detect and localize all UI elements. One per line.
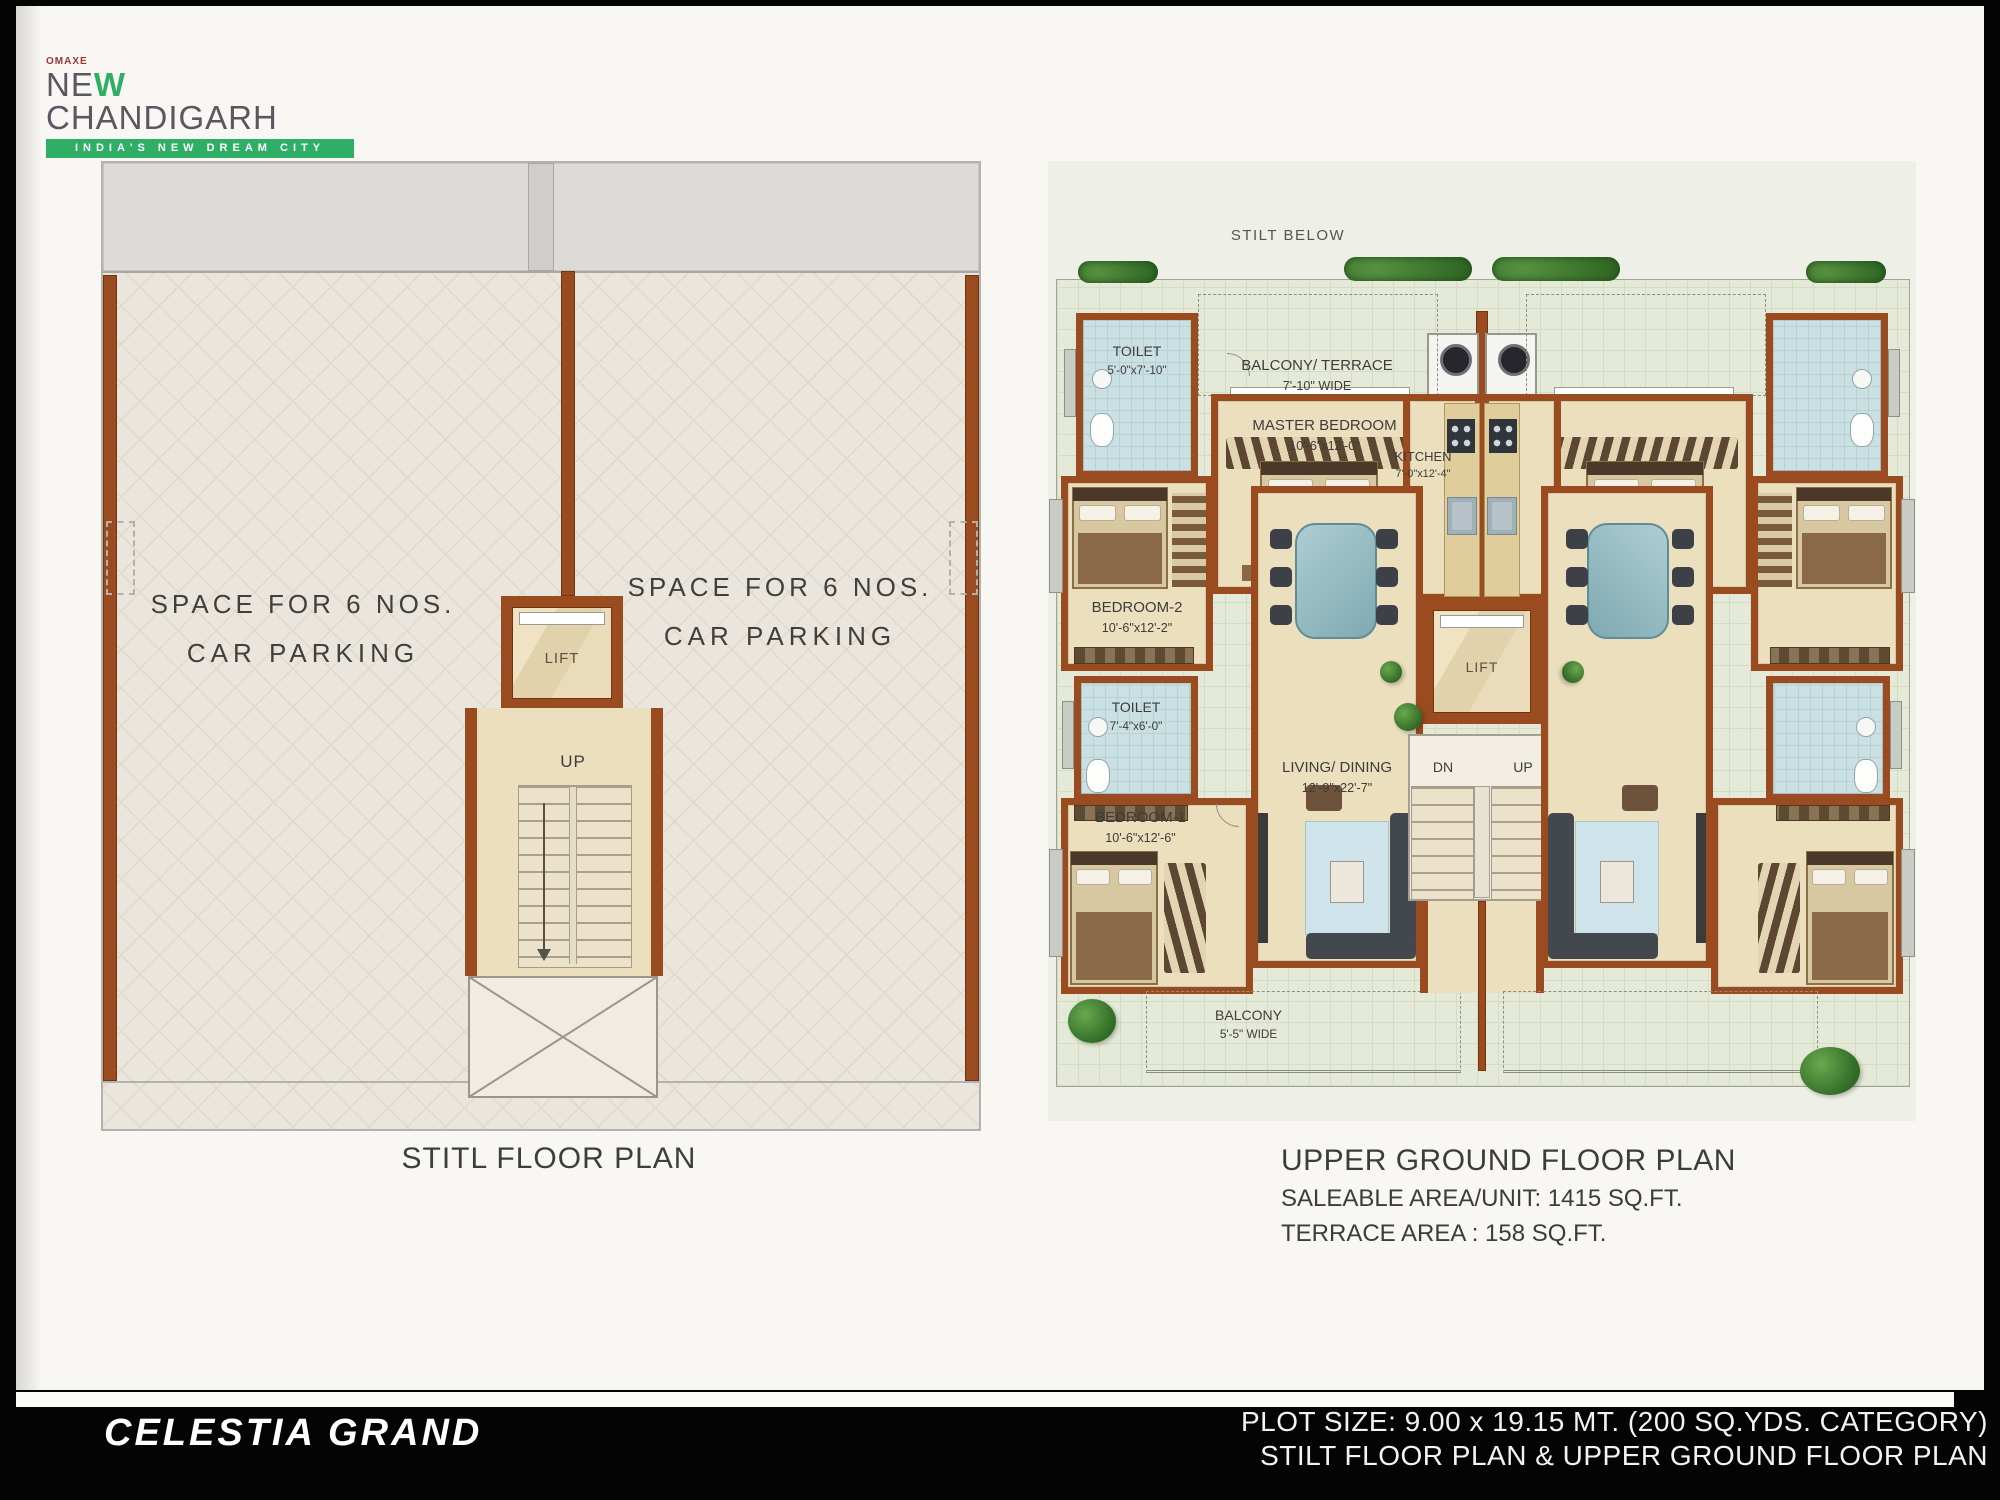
dining-chair-icon <box>1270 529 1292 549</box>
room-name: MASTER BEDROOM <box>1252 417 1396 434</box>
pillow-icon <box>1803 505 1840 521</box>
stilt-center-wall <box>561 271 575 596</box>
terrace-dashed-boundary <box>1526 294 1766 396</box>
balcony-area <box>1503 991 1818 1073</box>
plot-size-text: PLOT SIZE: 9.00 x 19.15 MT. (200 SQ.YDS.… <box>1241 1405 1988 1439</box>
wardrobe <box>1776 805 1890 821</box>
sofa <box>1548 813 1574 941</box>
parking-left-line1: SPACE FOR 6 NOS. <box>151 589 456 619</box>
parking-label-right: SPACE FOR 6 NOS. CAR PARKING <box>615 571 945 652</box>
bedroom2-bed <box>1796 487 1892 589</box>
room-dim: 10'-6"x12'-2" <box>1061 621 1213 637</box>
basin-icon <box>1852 369 1872 389</box>
dining-chair-icon <box>1672 529 1694 549</box>
label-balcony-terrace: BALCONY/ TERRACE 7'-10" WIDE <box>1206 357 1428 394</box>
armchair <box>1622 785 1658 811</box>
label-bedroom-1: BEDROOM-1 10'-6"x12'-6" <box>1058 809 1223 846</box>
stilt-plan-caption: STITL FLOOR PLAN <box>349 1142 749 1176</box>
brochure-canvas: OMAXE NEW CHANDIGARH INDIA'S NEW DREAM C… <box>16 6 1984 1390</box>
bedroom2-bed <box>1072 487 1168 589</box>
upper-plan-caption: UPPER GROUND FLOOR PLAN <box>1281 1144 1736 1178</box>
label-toilet-mid: TOILET 7'-4"x6'-0" <box>1074 699 1198 734</box>
lift-door-icon <box>519 612 605 625</box>
pillow-icon <box>1079 505 1116 521</box>
wardrobe <box>1074 647 1194 664</box>
bedroom1-bed <box>1070 851 1158 985</box>
dining-chair-icon <box>1376 529 1398 549</box>
room-name: TOILET <box>1113 343 1162 359</box>
stairs-flight-dn <box>1411 786 1474 900</box>
blanket <box>1078 533 1162 584</box>
terrace-area-text: TERRACE AREA : 158 SQ.FT. <box>1281 1220 1736 1248</box>
stilt-left-opening <box>106 521 135 595</box>
sink-icon <box>1487 497 1517 535</box>
headboard <box>1261 462 1377 475</box>
pillow-icon <box>1076 869 1110 885</box>
pillow-icon <box>1854 869 1888 885</box>
dining-chair-icon <box>1672 567 1694 587</box>
logo-title: NEW CHANDIGARH <box>46 68 366 134</box>
room-name: BEDROOM-2 <box>1092 599 1183 616</box>
label-toilet-top: TOILET 5'-0"x7'-10" <box>1076 343 1198 378</box>
washer-drum-icon <box>1440 344 1472 376</box>
omaxe-new-chandigarh-logo: OMAXE NEW CHANDIGARH INDIA'S NEW DREAM C… <box>46 56 366 158</box>
bay-window <box>1049 849 1063 957</box>
pillow-icon <box>1812 869 1846 885</box>
parking-right-line1: SPACE FOR 6 NOS. <box>628 572 933 602</box>
parking-right-line2: CAR PARKING <box>615 620 945 653</box>
room-name: BEDROOM-1 <box>1095 809 1186 826</box>
room-name: TOILET <box>1112 699 1161 715</box>
headboard <box>1587 462 1703 475</box>
hedge-plant-icon <box>1344 257 1472 281</box>
tv-unit <box>1258 813 1268 943</box>
upper-ground-floor-plan: STILT BELOW <box>1048 161 1916 1121</box>
sofa <box>1548 933 1658 959</box>
room-name: BALCONY <box>1215 1007 1282 1023</box>
label-bedroom-2: BEDROOM-2 10'-6"x12'-2" <box>1061 599 1213 636</box>
dining-chair-icon <box>1672 605 1694 625</box>
coffee-table <box>1330 861 1364 903</box>
dining-chair-icon <box>1566 529 1588 549</box>
room-toilet-top <box>1766 313 1888 478</box>
dining-chair-icon <box>1376 567 1398 587</box>
stilt-below-label: STILT BELOW <box>1198 227 1378 246</box>
parking-label-left: SPACE FOR 6 NOS. CAR PARKING <box>138 588 468 669</box>
zebra-rug <box>1758 863 1800 973</box>
upper-plan-caption-block: UPPER GROUND FLOOR PLAN SALEABLE AREA/UN… <box>1281 1144 1736 1248</box>
saleable-area-text: SALEABLE AREA/UNIT: 1415 SQ.FT. <box>1281 1185 1736 1213</box>
dining-chair-icon <box>1566 605 1588 625</box>
bay-window <box>1064 349 1076 417</box>
logo-tagline: INDIA'S NEW DREAM CITY <box>46 139 354 158</box>
headboard <box>1071 852 1157 865</box>
room-dim: 5'-5" WIDE <box>1146 1028 1351 1043</box>
brochure-page: OMAXE NEW CHANDIGARH INDIA'S NEW DREAM C… <box>0 0 2000 1500</box>
headboard <box>1073 488 1167 501</box>
bay-window <box>1901 849 1915 957</box>
tv-unit <box>1696 813 1706 943</box>
wc-icon <box>1086 759 1110 793</box>
dining-table <box>1295 523 1377 639</box>
blanket <box>1802 533 1886 584</box>
bay-window <box>1890 701 1902 769</box>
room-dim: 10'-6"x12'-6" <box>1058 831 1223 847</box>
stove-icon <box>1447 419 1475 453</box>
pillow-icon <box>1848 505 1885 521</box>
label-kitchen: KITCHEN 7'-0"x12'-4" <box>1384 449 1462 482</box>
label-balcony: BALCONY 5'-5" WIDE <box>1146 1007 1351 1042</box>
room-toilet-top <box>1076 313 1198 478</box>
headboard <box>1797 488 1891 501</box>
coffee-table <box>1600 861 1634 903</box>
logo-title-chandigarh: CHANDIGARH <box>46 99 278 136</box>
blanket <box>1812 912 1888 980</box>
stilt-left-wall <box>103 275 117 1081</box>
room-name: KITCHEN <box>1394 449 1451 464</box>
footer-plan-info: PLOT SIZE: 9.00 x 19.15 MT. (200 SQ.YDS.… <box>1241 1405 1988 1473</box>
pillow-icon <box>1124 505 1161 521</box>
stove-icon <box>1489 419 1517 453</box>
zebra-rug <box>1164 863 1206 973</box>
striped-rug <box>1758 493 1792 587</box>
striped-rug <box>1172 493 1206 587</box>
stilt-stair-rail <box>569 787 577 964</box>
shrub-plant-icon <box>1068 999 1116 1043</box>
room-name: BALCONY/ TERRACE <box>1241 357 1392 374</box>
logo-title-ne: NE <box>46 66 94 103</box>
room-dim: 5'-0"x7'-10" <box>1076 364 1198 379</box>
blanket <box>1076 912 1152 980</box>
hedge-plant-icon <box>1078 261 1158 283</box>
plant-icon <box>1562 661 1584 683</box>
logo-w-mark-icon: W <box>94 66 126 103</box>
dining-chair-icon <box>1270 567 1292 587</box>
stilt-up-label: UP <box>533 751 613 772</box>
wc-icon <box>1090 413 1114 447</box>
stilt-floor-plan: LIFT UP SPACE FOR 6 NOS. CAR PARKING SPA… <box>101 161 981 1131</box>
bay-window <box>1888 349 1900 417</box>
plant-icon <box>1380 661 1402 683</box>
shrub-plant-icon <box>1800 1047 1860 1095</box>
bay-window <box>1049 499 1063 593</box>
room-dim: 7'-10" WIDE <box>1206 379 1428 395</box>
wc-icon <box>1850 413 1874 447</box>
sofa <box>1306 933 1416 959</box>
project-name: CELESTIA GRAND <box>104 1412 482 1455</box>
dn-label: DN <box>1414 759 1472 777</box>
stilt-right-wall <box>965 275 979 1081</box>
footer-caption-text: STILT FLOOR PLAN & UPPER GROUND FLOOR PL… <box>1241 1439 1988 1473</box>
lift-label: LIFT <box>512 650 612 667</box>
room-dim: 7'-0"x12'-4" <box>1384 468 1462 482</box>
pillow-icon <box>1118 869 1152 885</box>
bedroom1-bed <box>1806 851 1894 985</box>
sink-icon <box>1447 497 1477 535</box>
stair-direction-arrow-head-icon <box>537 949 551 961</box>
parking-left-line2: CAR PARKING <box>138 637 468 670</box>
dining-chair-icon <box>1376 605 1398 625</box>
right-unit-mirrored <box>1482 161 1916 1121</box>
room-name: LIVING/ DINING <box>1282 759 1392 776</box>
stair-void-hatch <box>468 976 658 1098</box>
headboard <box>1807 852 1893 865</box>
dining-chair-icon <box>1270 605 1292 625</box>
stilt-strip-divider <box>528 163 554 271</box>
basin-icon <box>1856 717 1876 737</box>
bay-window <box>1901 499 1915 593</box>
dining-chair-icon <box>1566 567 1588 587</box>
stilt-right-opening <box>949 521 978 595</box>
bay-window <box>1062 701 1074 769</box>
stilt-lift: LIFT <box>501 596 623 710</box>
dining-table <box>1587 523 1669 639</box>
wc-icon <box>1854 759 1878 793</box>
label-living-dining: LIVING/ DINING 12'-9"x22'-7" <box>1251 759 1423 796</box>
wardrobe <box>1770 647 1890 664</box>
stair-direction-arrow-line <box>543 803 545 951</box>
room-dim: 7'-4"x6'-0" <box>1074 720 1198 735</box>
room-dim: 12'-9"x22'-7" <box>1251 781 1423 797</box>
plant-icon <box>1394 703 1422 731</box>
